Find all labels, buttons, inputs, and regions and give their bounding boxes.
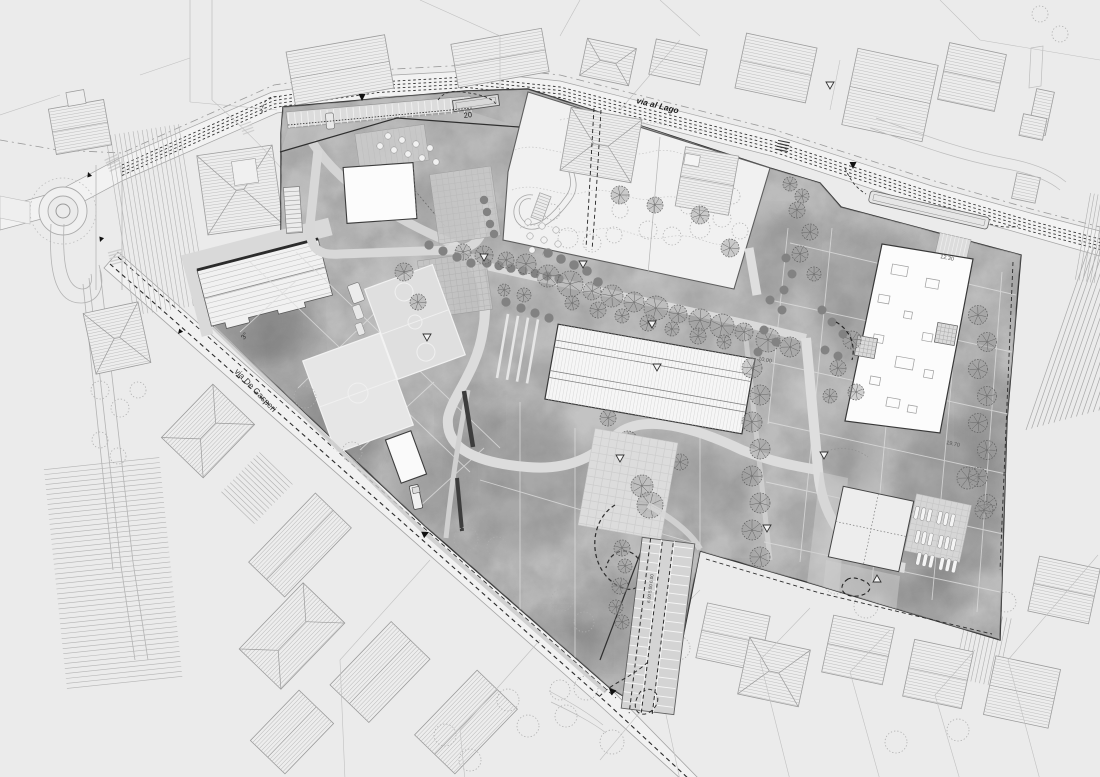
svg-text:20: 20	[463, 110, 472, 120]
